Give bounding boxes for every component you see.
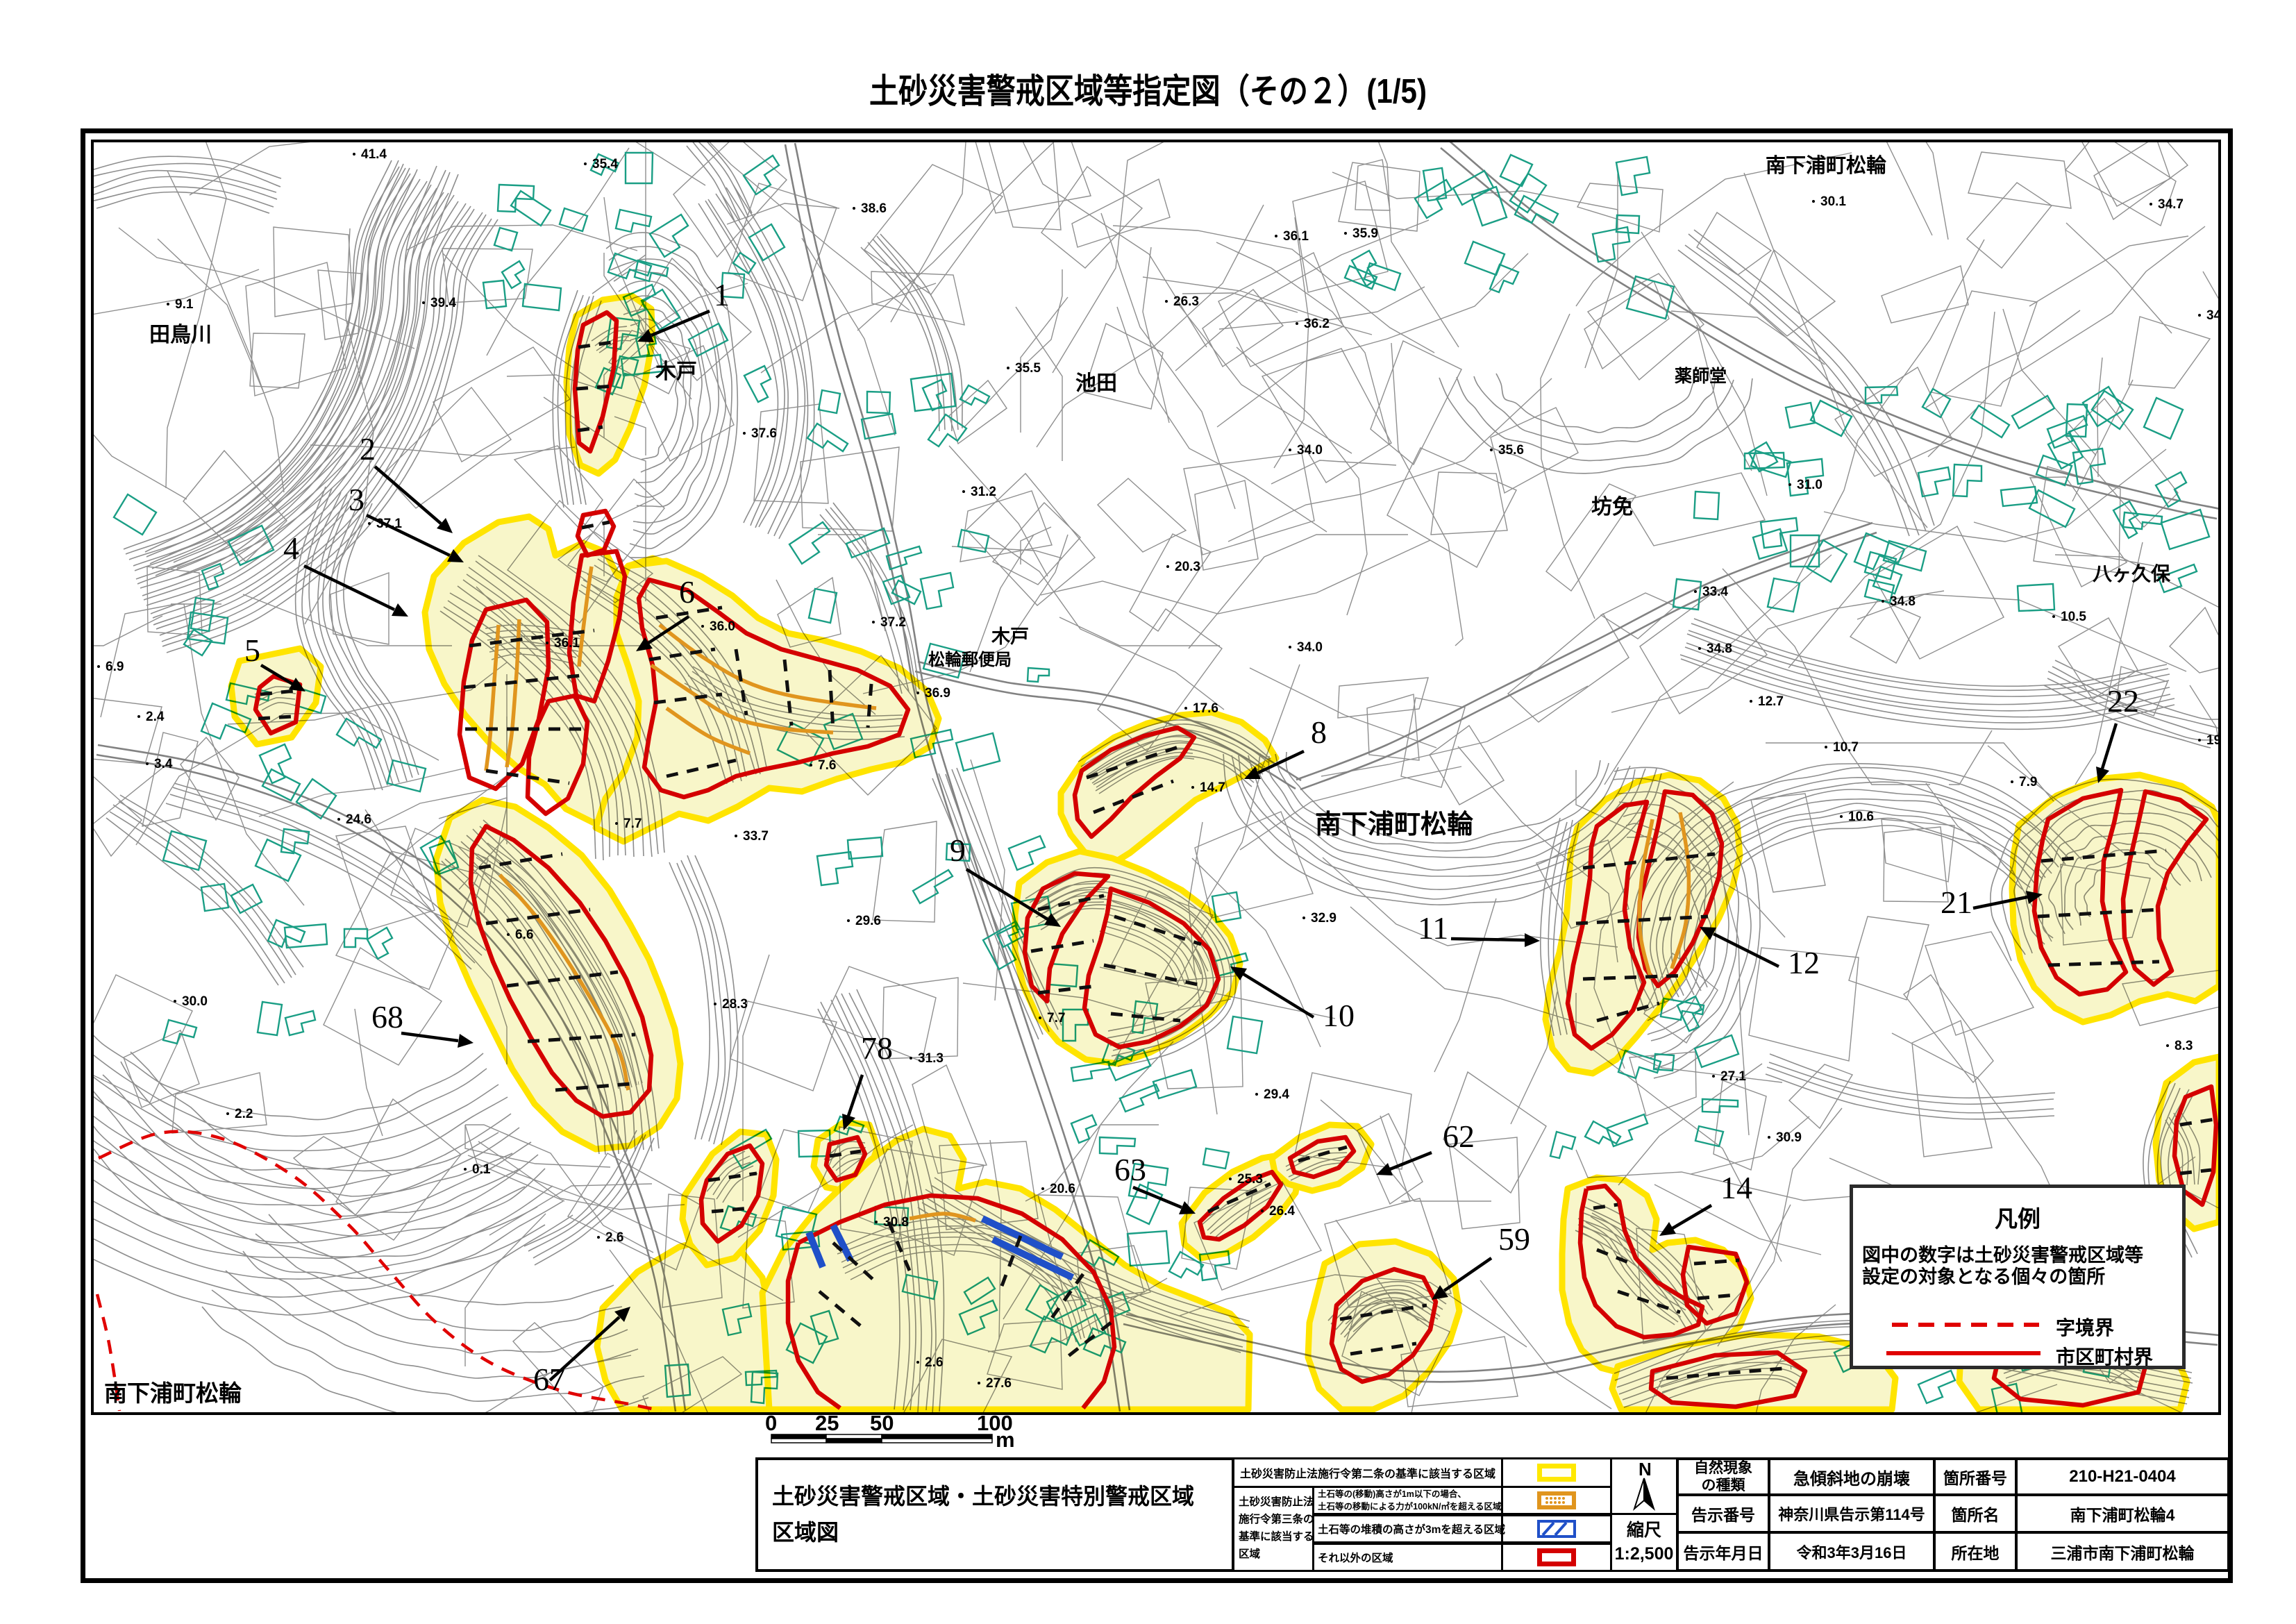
svg-text:50: 50 (870, 1411, 894, 1435)
svg-text:N: N (1639, 1460, 1652, 1480)
svg-text:0: 0 (765, 1411, 777, 1435)
svg-text:25: 25 (815, 1411, 839, 1435)
svg-text:m: m (996, 1428, 1015, 1452)
